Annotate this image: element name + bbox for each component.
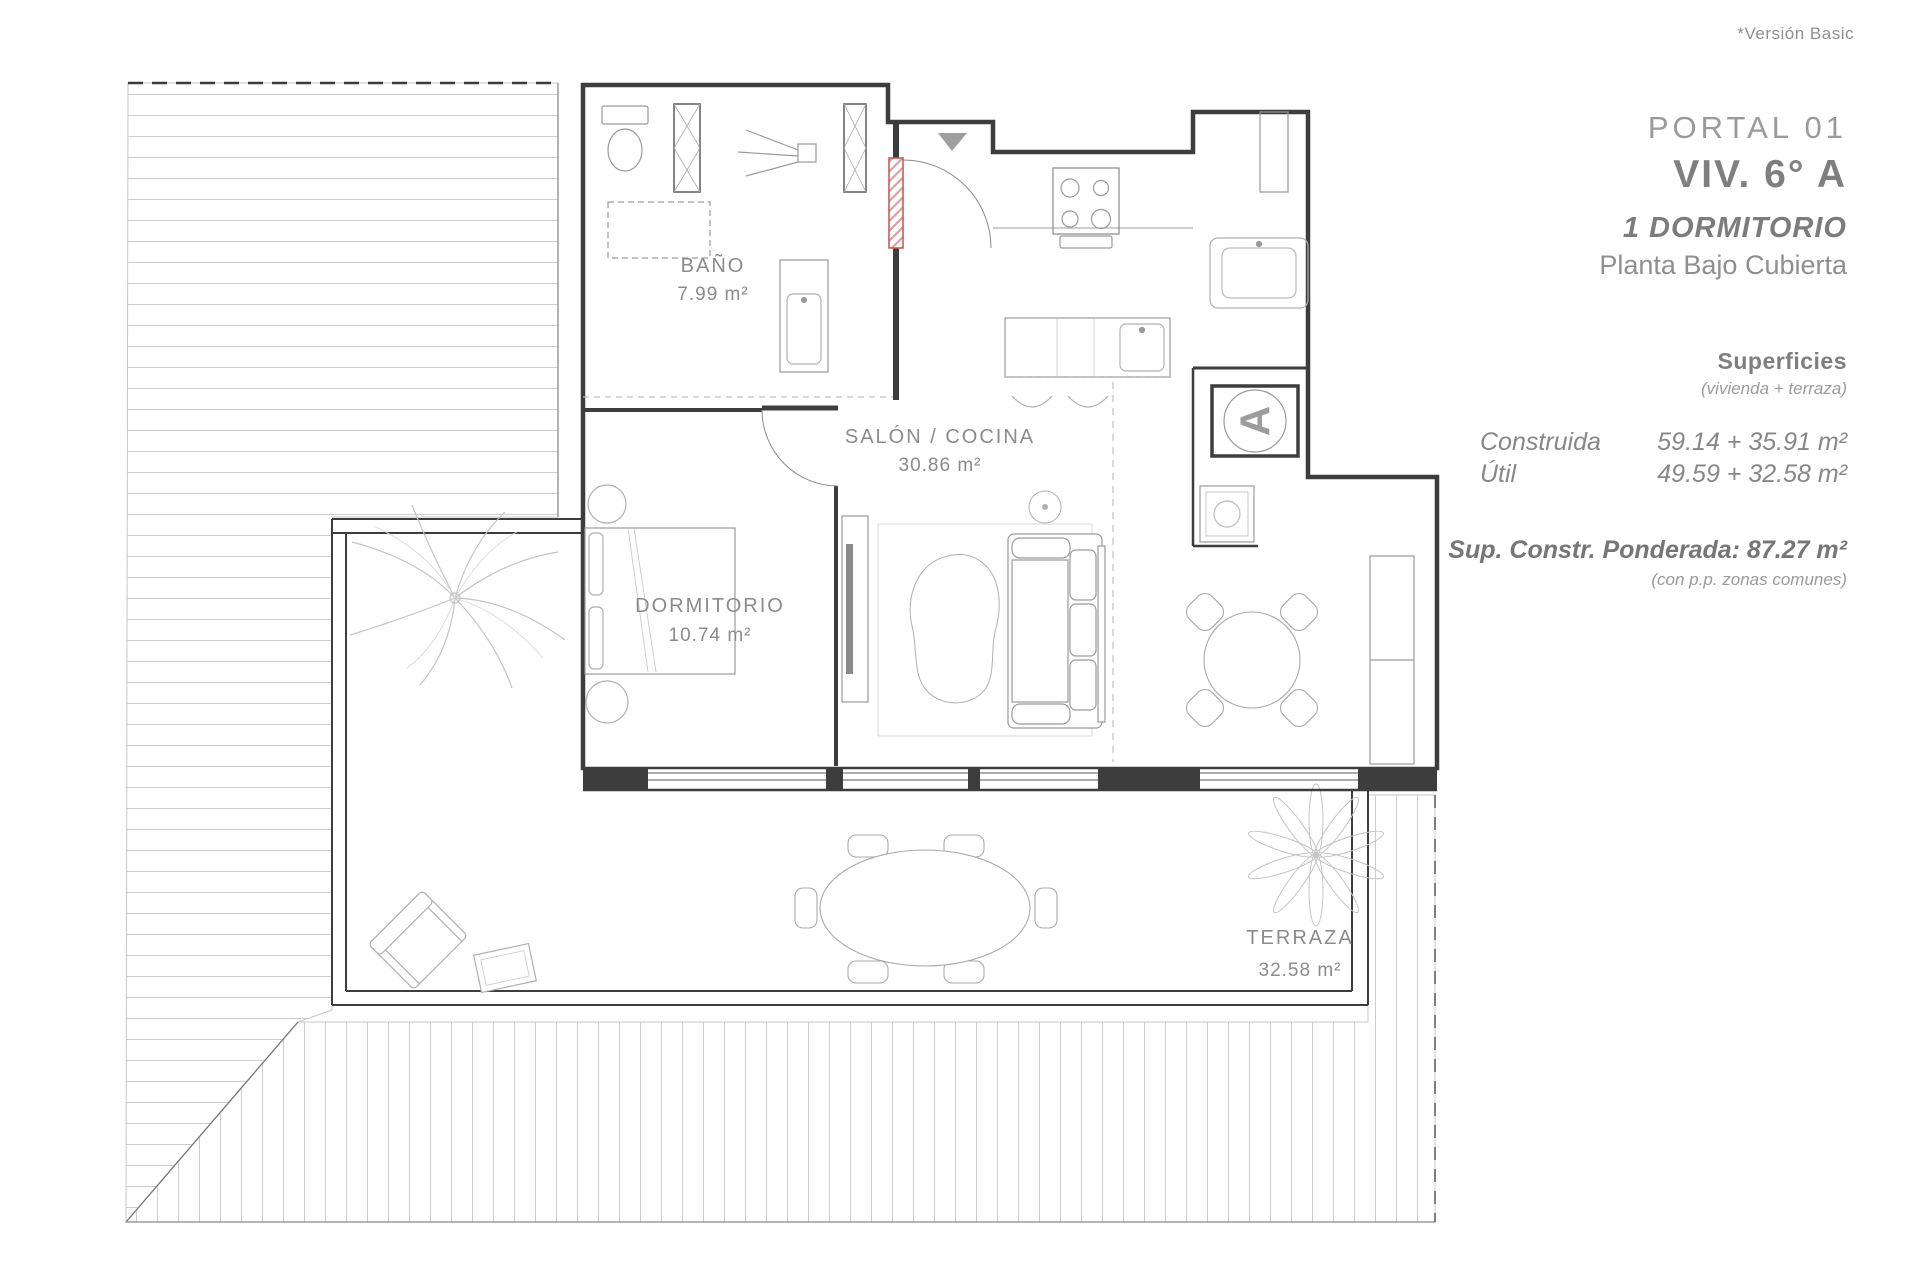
living-room (842, 491, 1414, 764)
room-label-bano: BAÑO (681, 253, 746, 277)
sofa (1008, 534, 1105, 728)
bar-stools (1012, 396, 1108, 407)
vanity-counter-dashed (608, 202, 710, 258)
dining-area (1182, 589, 1321, 730)
unit-type: 1 DORMITORIO (1623, 212, 1847, 245)
toilet-bowl (608, 129, 642, 171)
weighted-note: (con p.p. zonas comunes) (1651, 570, 1847, 590)
surfaces-title: Superficies (1718, 348, 1848, 375)
bedroom-door (762, 408, 838, 486)
terrace-plant (1246, 784, 1385, 926)
kitchen-tall-unit (1260, 112, 1288, 192)
floor-plan-sheet: A BAÑO 7.99 m² SALÓN / COCINA 30.86 m² D… (0, 0, 1920, 1280)
surface-value: 59.14 + 35.91 m² (1657, 428, 1847, 457)
bathroom-fixtures (602, 104, 866, 372)
floor-name: Planta Bajo Cubierta (1599, 250, 1847, 281)
bedside-table (586, 681, 628, 723)
entrance-marker-triangle-icon (938, 133, 967, 151)
washer-unit (1200, 486, 1254, 542)
surface-row-util: Útil 49.59 + 32.58 m² (1480, 460, 1847, 489)
unit-title: VIV. 6° A (1673, 153, 1847, 197)
portal-title: PORTAL 01 (1648, 110, 1847, 146)
room-area-terraza: 32.58 m² (1259, 960, 1342, 981)
bathroom-sink (780, 260, 828, 372)
room-label-salon: SALÓN / COCINA (845, 425, 1035, 448)
weighted-surface: Sup. Constr. Ponderada: 87.27 m² (1448, 536, 1847, 565)
terrace-dining-set (795, 835, 1057, 983)
door-swing-arc (762, 410, 838, 486)
tv-unit (842, 516, 868, 702)
room-label-dormitorio: DORMITORIO (635, 595, 785, 617)
surface-row-construida: Construida 59.14 + 35.91 m² (1480, 428, 1847, 457)
shower-head (738, 130, 816, 176)
unit-marker-label: A (1232, 406, 1279, 436)
room-label-terraza: TERRAZA (1246, 927, 1353, 949)
vent-shaft (674, 104, 866, 192)
room-area-dormitorio: 10.74 m² (669, 625, 752, 646)
toilet-tank (602, 106, 648, 124)
kitchen-island (1005, 318, 1170, 407)
stove (1053, 168, 1119, 248)
terrace-lounge-chair (369, 891, 468, 990)
entrance-door (889, 158, 991, 248)
dining-table (1204, 612, 1300, 708)
bedside-table (588, 485, 626, 523)
floor-lamp (1029, 491, 1061, 523)
kitchen (993, 112, 1308, 407)
version-note: *Versión Basic (1737, 24, 1854, 44)
floor-plan-drawing: A BAÑO 7.99 m² SALÓN / COCINA 30.86 m² D… (0, 0, 1920, 1280)
kitchen-sink-counter (1210, 238, 1308, 308)
door-swing-arc (903, 160, 991, 248)
south-facade-windows (583, 768, 1437, 790)
terrace-palm-tree (343, 497, 571, 699)
surface-label: Construida (1480, 428, 1601, 457)
room-area-salon: 30.86 m² (899, 455, 982, 476)
terrace-side-table (474, 944, 537, 993)
unit-shaft: A (1212, 386, 1298, 456)
room-area-bano: 7.99 m² (677, 284, 748, 305)
surface-label: Útil (1480, 460, 1516, 489)
surface-value: 49.59 + 32.58 m² (1657, 460, 1847, 489)
sideboard (1370, 556, 1414, 764)
terrace-table (820, 850, 1030, 966)
coffee-table (910, 555, 999, 703)
surfaces-subtitle: (vivienda + terraza) (1701, 379, 1847, 399)
tv-screen (846, 544, 853, 674)
